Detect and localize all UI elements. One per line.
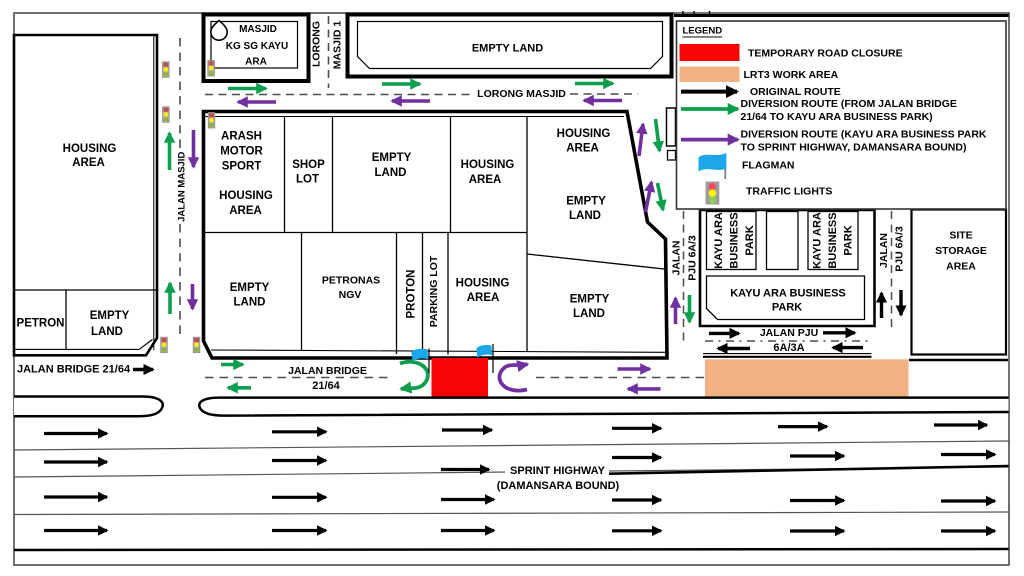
svg-text:EMPTY: EMPTY [570,294,610,306]
svg-text:JALAN MASJID: JALAN MASJID [177,152,188,222]
svg-text:KAYU ARA: KAYU ARA [812,212,824,269]
svg-text:DIVERSION ROUTE (KAYU ARA BUSI: DIVERSION ROUTE (KAYU ARA BUSINESS PARK [741,129,987,141]
svg-text:MASJID: MASJID [239,24,277,35]
svg-text:KG SG KAYU: KG SG KAYU [226,41,288,52]
svg-text:ARASH: ARASH [221,131,262,143]
svg-text:TRAFFIC LIGHTS: TRAFFIC LIGHTS [746,185,832,197]
svg-text:SPRINT HIGHWAY: SPRINT HIGHWAY [510,465,606,477]
svg-text:EMPTY LAND: EMPTY LAND [472,43,543,55]
svg-text:ORIGINAL ROUTE: ORIGINAL ROUTE [750,86,841,98]
svg-text:JALAN BRIDGE 21/64: JALAN BRIDGE 21/64 [17,364,131,376]
svg-text:AREA: AREA [946,261,976,273]
svg-text:LORONG MASJID: LORONG MASJID [477,88,566,100]
svg-text:KAYU ARA: KAYU ARA [713,212,725,269]
svg-text:JALAN: JALAN [878,233,890,268]
svg-text:AREA: AREA [469,174,502,186]
svg-text:JALAN PJU: JALAN PJU [760,327,818,339]
svg-text:SHOP: SHOP [292,159,325,171]
svg-text:AREA: AREA [72,157,105,169]
svg-text:AREA: AREA [566,143,599,155]
svg-text:AREA: AREA [467,292,500,304]
svg-text:PJU 6A/3: PJU 6A/3 [687,235,699,281]
svg-text:LORONG: LORONG [311,21,323,67]
svg-text:BUSINESS: BUSINESS [729,212,741,268]
svg-text:21/64: 21/64 [312,380,340,392]
svg-text:JALAN: JALAN [671,240,683,275]
svg-text:HOUSING: HOUSING [219,190,273,202]
svg-text:AREA: AREA [229,205,262,217]
svg-text:NGV: NGV [339,289,362,301]
svg-text:PETRONAS: PETRONAS [322,275,380,287]
svg-text:LAND: LAND [375,167,407,179]
svg-text:FLAGMAN: FLAGMAN [742,159,795,171]
svg-text:MOTOR: MOTOR [220,146,263,158]
svg-text:LAND: LAND [91,326,123,338]
svg-text:JALAN BRIDGE: JALAN BRIDGE [288,365,367,377]
svg-text:(DAMANSARA BOUND): (DAMANSARA BOUND) [497,480,620,492]
svg-text:LAND: LAND [569,210,601,222]
svg-text:EMPTY: EMPTY [566,196,606,208]
svg-text:SPORT: SPORT [222,161,262,173]
svg-text:LEGEND: LEGEND [683,26,723,37]
svg-text:6A/3A: 6A/3A [773,342,804,354]
svg-text:STORAGE: STORAGE [935,245,987,257]
svg-text:LAND: LAND [573,308,605,320]
svg-text:LOT: LOT [296,174,319,186]
svg-text:PJU 6A/3: PJU 6A/3 [894,226,906,272]
svg-text:KAYU ARA BUSINESS: KAYU ARA BUSINESS [730,288,846,300]
svg-text:TEMPORARY ROAD CLOSURE: TEMPORARY ROAD CLOSURE [748,48,903,60]
svg-text:PARK: PARK [772,302,802,314]
svg-text:HOUSING: HOUSING [461,159,515,171]
svg-text:PARK: PARK [843,225,855,255]
svg-text:LAND: LAND [234,297,266,309]
svg-text:PETRON: PETRON [17,318,65,330]
svg-text:HOUSING: HOUSING [456,278,510,290]
svg-text:LRT3 WORK AREA: LRT3 WORK AREA [744,69,839,81]
svg-text:MASJID 1: MASJID 1 [332,21,344,70]
svg-text:PARK: PARK [744,225,756,255]
svg-text:21/64 TO KAYU ARA BUSINESS PAR: 21/64 TO KAYU ARA BUSINESS PARK) [741,111,933,123]
svg-text:PARKING LOT: PARKING LOT [428,255,440,327]
svg-text:SITE: SITE [949,230,972,242]
svg-text:ARA: ARA [245,57,267,68]
svg-text:HOUSING: HOUSING [557,128,611,140]
svg-text:EMPTY: EMPTY [372,152,412,164]
svg-text:DIVERSION ROUTE (FROM JALAN BR: DIVERSION ROUTE (FROM JALAN BRIDGE [741,98,957,110]
svg-text:PROTON: PROTON [406,270,418,319]
svg-text:HOUSING: HOUSING [63,143,117,155]
svg-text:EMPTY: EMPTY [90,310,130,322]
svg-text:TO SPRINT HIGHWAY, DAMANSARA B: TO SPRINT HIGHWAY, DAMANSARA BOUND) [741,141,967,153]
svg-text:BUSINESS: BUSINESS [827,212,839,268]
svg-text:EMPTY: EMPTY [230,282,270,294]
